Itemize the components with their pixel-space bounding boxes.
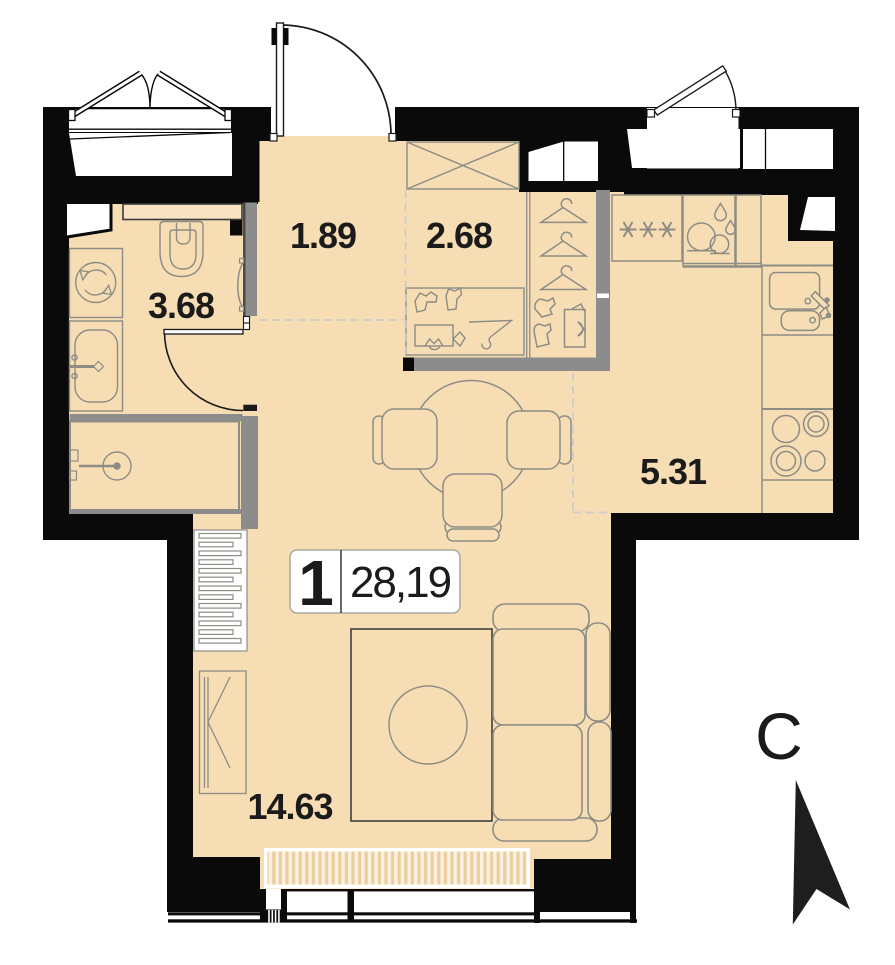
svg-text:3.68: 3.68 bbox=[148, 285, 214, 326]
svg-text:14.63: 14.63 bbox=[247, 786, 332, 827]
svg-text:28,19: 28,19 bbox=[350, 558, 451, 607]
svg-text:С: С bbox=[755, 699, 803, 773]
svg-text:1.89: 1.89 bbox=[290, 215, 356, 256]
svg-text:1: 1 bbox=[298, 547, 334, 619]
svg-text:5.31: 5.31 bbox=[640, 451, 707, 492]
svg-text:2.68: 2.68 bbox=[426, 215, 492, 256]
